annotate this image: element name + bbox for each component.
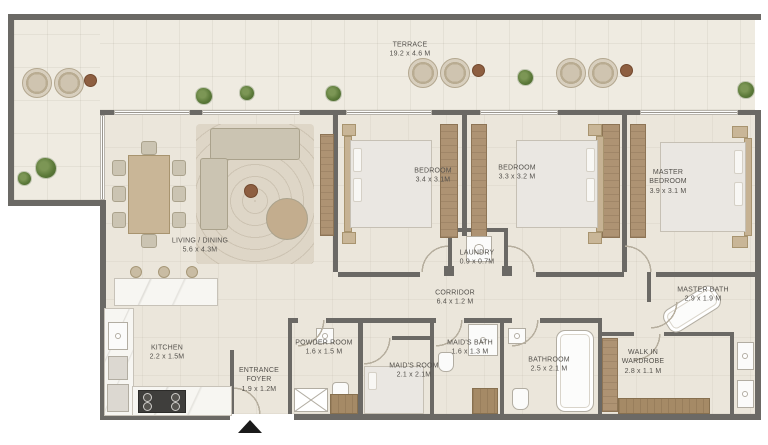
room-name: MAID'S ROOM (389, 362, 438, 371)
room-label-entrance-foyer: ENTRANCE FOYER 1.9 x 1.2M (232, 366, 286, 394)
wall (464, 318, 512, 323)
room-dims: 19.2 x 4.6 M (390, 50, 431, 59)
vanity (472, 388, 498, 414)
door-arc (512, 320, 540, 348)
terrace-floor (14, 20, 755, 110)
burner-icon (171, 402, 180, 411)
faucet-icon (742, 353, 748, 359)
plant-icon (518, 70, 533, 85)
room-name: LIVING / DINING (172, 237, 228, 246)
dining-chair (112, 160, 126, 176)
room-name: BEDROOM (498, 164, 536, 173)
room-label-laundry: LAUNDRY 0.9 x 0.7M (460, 249, 495, 268)
fridge (107, 384, 129, 412)
room-name: KITCHEN (150, 344, 185, 353)
room-name: WALK IN WARDROBE (614, 348, 672, 367)
wall (462, 110, 467, 236)
room-dims: 3.4 x 3.1M (414, 176, 452, 185)
wardrobe (602, 124, 620, 238)
plant-icon (326, 86, 341, 101)
wall (326, 318, 436, 323)
terrace-chair (556, 58, 586, 88)
room-label-bathroom: BATHROOM 2.5 x 2.1 M (528, 356, 570, 375)
dining-chair (172, 186, 186, 202)
room-name: POWDER ROOM (295, 339, 352, 348)
terrace-chair (22, 68, 52, 98)
nightstand (732, 236, 748, 248)
burner-icon (143, 402, 152, 411)
oven (108, 356, 128, 380)
window (114, 110, 190, 115)
wall (730, 332, 734, 414)
wall (8, 14, 14, 206)
room-name: MASTER BEDROOM (638, 168, 698, 187)
wall (500, 318, 504, 414)
toilet (512, 388, 529, 410)
window (346, 110, 432, 115)
dining-chair (141, 141, 157, 155)
wall (738, 110, 755, 115)
sink (737, 342, 754, 370)
door-arc (508, 242, 538, 272)
bar-stool (186, 266, 198, 278)
plant-icon (196, 88, 212, 104)
room-label-powder-room: POWDER ROOM 1.6 x 1.5 M (295, 339, 352, 358)
terrace-chair (54, 68, 84, 98)
faucet-icon (115, 333, 121, 339)
floor-plan: TERRACE 19.2 x 4.6 M LIVING / DINING 5.6… (0, 0, 768, 445)
kitchen-island (114, 278, 218, 306)
wall (647, 272, 651, 302)
pillow (586, 148, 595, 172)
room-name: BEDROOM (414, 167, 452, 176)
nightstand (732, 126, 748, 138)
wardrobe (618, 398, 710, 414)
nightstand (342, 124, 356, 136)
wall (300, 110, 346, 115)
plant-icon (240, 86, 254, 100)
room-dims: 2.1 x 2.1M (389, 371, 438, 380)
terrace-chair (440, 58, 470, 88)
room-name: CORRIDOR (435, 289, 475, 298)
room-label-maids-room: MAID'S ROOM 2.1 x 2.1M (389, 362, 438, 381)
room-name: MASTER BATH (677, 286, 728, 295)
wall (8, 200, 104, 206)
dining-chair (172, 160, 186, 176)
room-dims: 6.4 x 1.2 M (435, 298, 475, 307)
dining-chair (141, 234, 157, 248)
room-dims: 0.9 x 0.7M (460, 258, 495, 267)
window (640, 110, 738, 115)
pillow (368, 372, 377, 390)
wall (288, 318, 292, 414)
room-label-bedroom-1: BEDROOM 3.4 x 3.1M (414, 167, 452, 186)
wardrobe (471, 124, 487, 238)
room-name: BATHROOM (528, 356, 570, 365)
room-name: LAUNDRY (460, 249, 495, 258)
nightstand (342, 232, 356, 244)
room-label-maids-bath: MAID'S BATH 1.6 x 1.3 M (447, 339, 493, 358)
door-arc (418, 242, 448, 272)
terrace-chair (588, 58, 618, 88)
nightstand (588, 124, 602, 136)
bar-stool (158, 266, 170, 278)
wall (656, 272, 755, 277)
pillow (734, 150, 743, 174)
wall (294, 414, 761, 420)
entrance-marker (238, 420, 262, 433)
wall (558, 110, 640, 115)
wall (432, 110, 480, 115)
dining-table (128, 155, 170, 234)
dining-chair (112, 186, 126, 202)
pillow (353, 178, 362, 202)
room-label-terrace: TERRACE 19.2 x 4.6 M (390, 41, 431, 60)
wall (8, 14, 761, 20)
door-arc (625, 240, 657, 272)
terrace-side-table (84, 74, 97, 87)
room-label-corridor: CORRIDOR 6.4 x 1.2 M (435, 289, 475, 308)
terrace-chair (408, 58, 438, 88)
sofa (200, 158, 228, 230)
shaft-box (294, 388, 328, 412)
window (100, 115, 105, 200)
side-table (244, 184, 258, 198)
tv-unit (320, 134, 334, 236)
wall (338, 272, 420, 277)
sofa (210, 128, 300, 160)
room-label-walk-in-wardrobe: WALK IN WARDROBE 2.8 x 1.1 M (614, 348, 672, 376)
room-name: TERRACE (390, 41, 431, 50)
pillow (353, 148, 362, 172)
plant-icon (36, 158, 56, 178)
burner-icon (143, 393, 152, 402)
room-label-kitchen: KITCHEN 2.2 x 1.5M (150, 344, 185, 363)
room-dims: 2.5 x 2.1 M (528, 365, 570, 374)
nightstand (588, 232, 602, 244)
burner-icon (171, 393, 180, 402)
room-dims: 1.6 x 1.5 M (295, 348, 352, 357)
room-dims: 2.8 x 1.1 M (614, 367, 672, 376)
plant-icon (18, 172, 31, 185)
stove (138, 390, 186, 413)
pillow (586, 178, 595, 202)
sink (737, 380, 754, 408)
room-label-master-bedroom: MASTER BEDROOM 3.9 x 3.1 M (638, 168, 698, 196)
room-name: MAID'S BATH (447, 339, 493, 348)
room-label-master-bath: MASTER BATH 2.9 x 1.9 M (677, 286, 728, 305)
dining-chair (112, 212, 126, 228)
room-dims: 2.2 x 1.5M (150, 353, 185, 362)
room-label-bedroom-2: BEDROOM 3.3 x 3.2 M (498, 164, 536, 183)
terrace-side-table (620, 64, 633, 77)
terrace-side-table (472, 64, 485, 77)
pillow (734, 182, 743, 206)
kitchen-sink (108, 322, 128, 350)
door-arc (651, 302, 681, 332)
room-label-living-dining: LIVING / DINING 5.6 x 4.3M (172, 237, 228, 256)
vanity (330, 394, 358, 414)
wall (755, 110, 761, 420)
room-dims: 5.6 x 4.3M (172, 246, 228, 255)
wall (392, 336, 430, 340)
lounge-chair (266, 198, 308, 240)
room-name: ENTRANCE FOYER (232, 366, 286, 385)
wall (190, 110, 202, 115)
window (202, 110, 300, 115)
window (480, 110, 558, 115)
room-dims: 3.3 x 3.2 M (498, 173, 536, 182)
room-dims: 3.9 x 3.1 M (638, 187, 698, 196)
wall (540, 318, 602, 323)
wall (602, 332, 634, 336)
wall (536, 272, 624, 277)
room-dims: 1.9 x 1.2M (232, 385, 286, 394)
dining-chair (172, 212, 186, 228)
room-dims: 2.9 x 1.9 M (677, 295, 728, 304)
plant-icon (738, 82, 754, 98)
door-arc (364, 338, 392, 366)
room-dims: 1.6 x 1.3 M (447, 348, 493, 357)
bar-stool (130, 266, 142, 278)
faucet-icon (742, 391, 748, 397)
wall (358, 318, 363, 414)
